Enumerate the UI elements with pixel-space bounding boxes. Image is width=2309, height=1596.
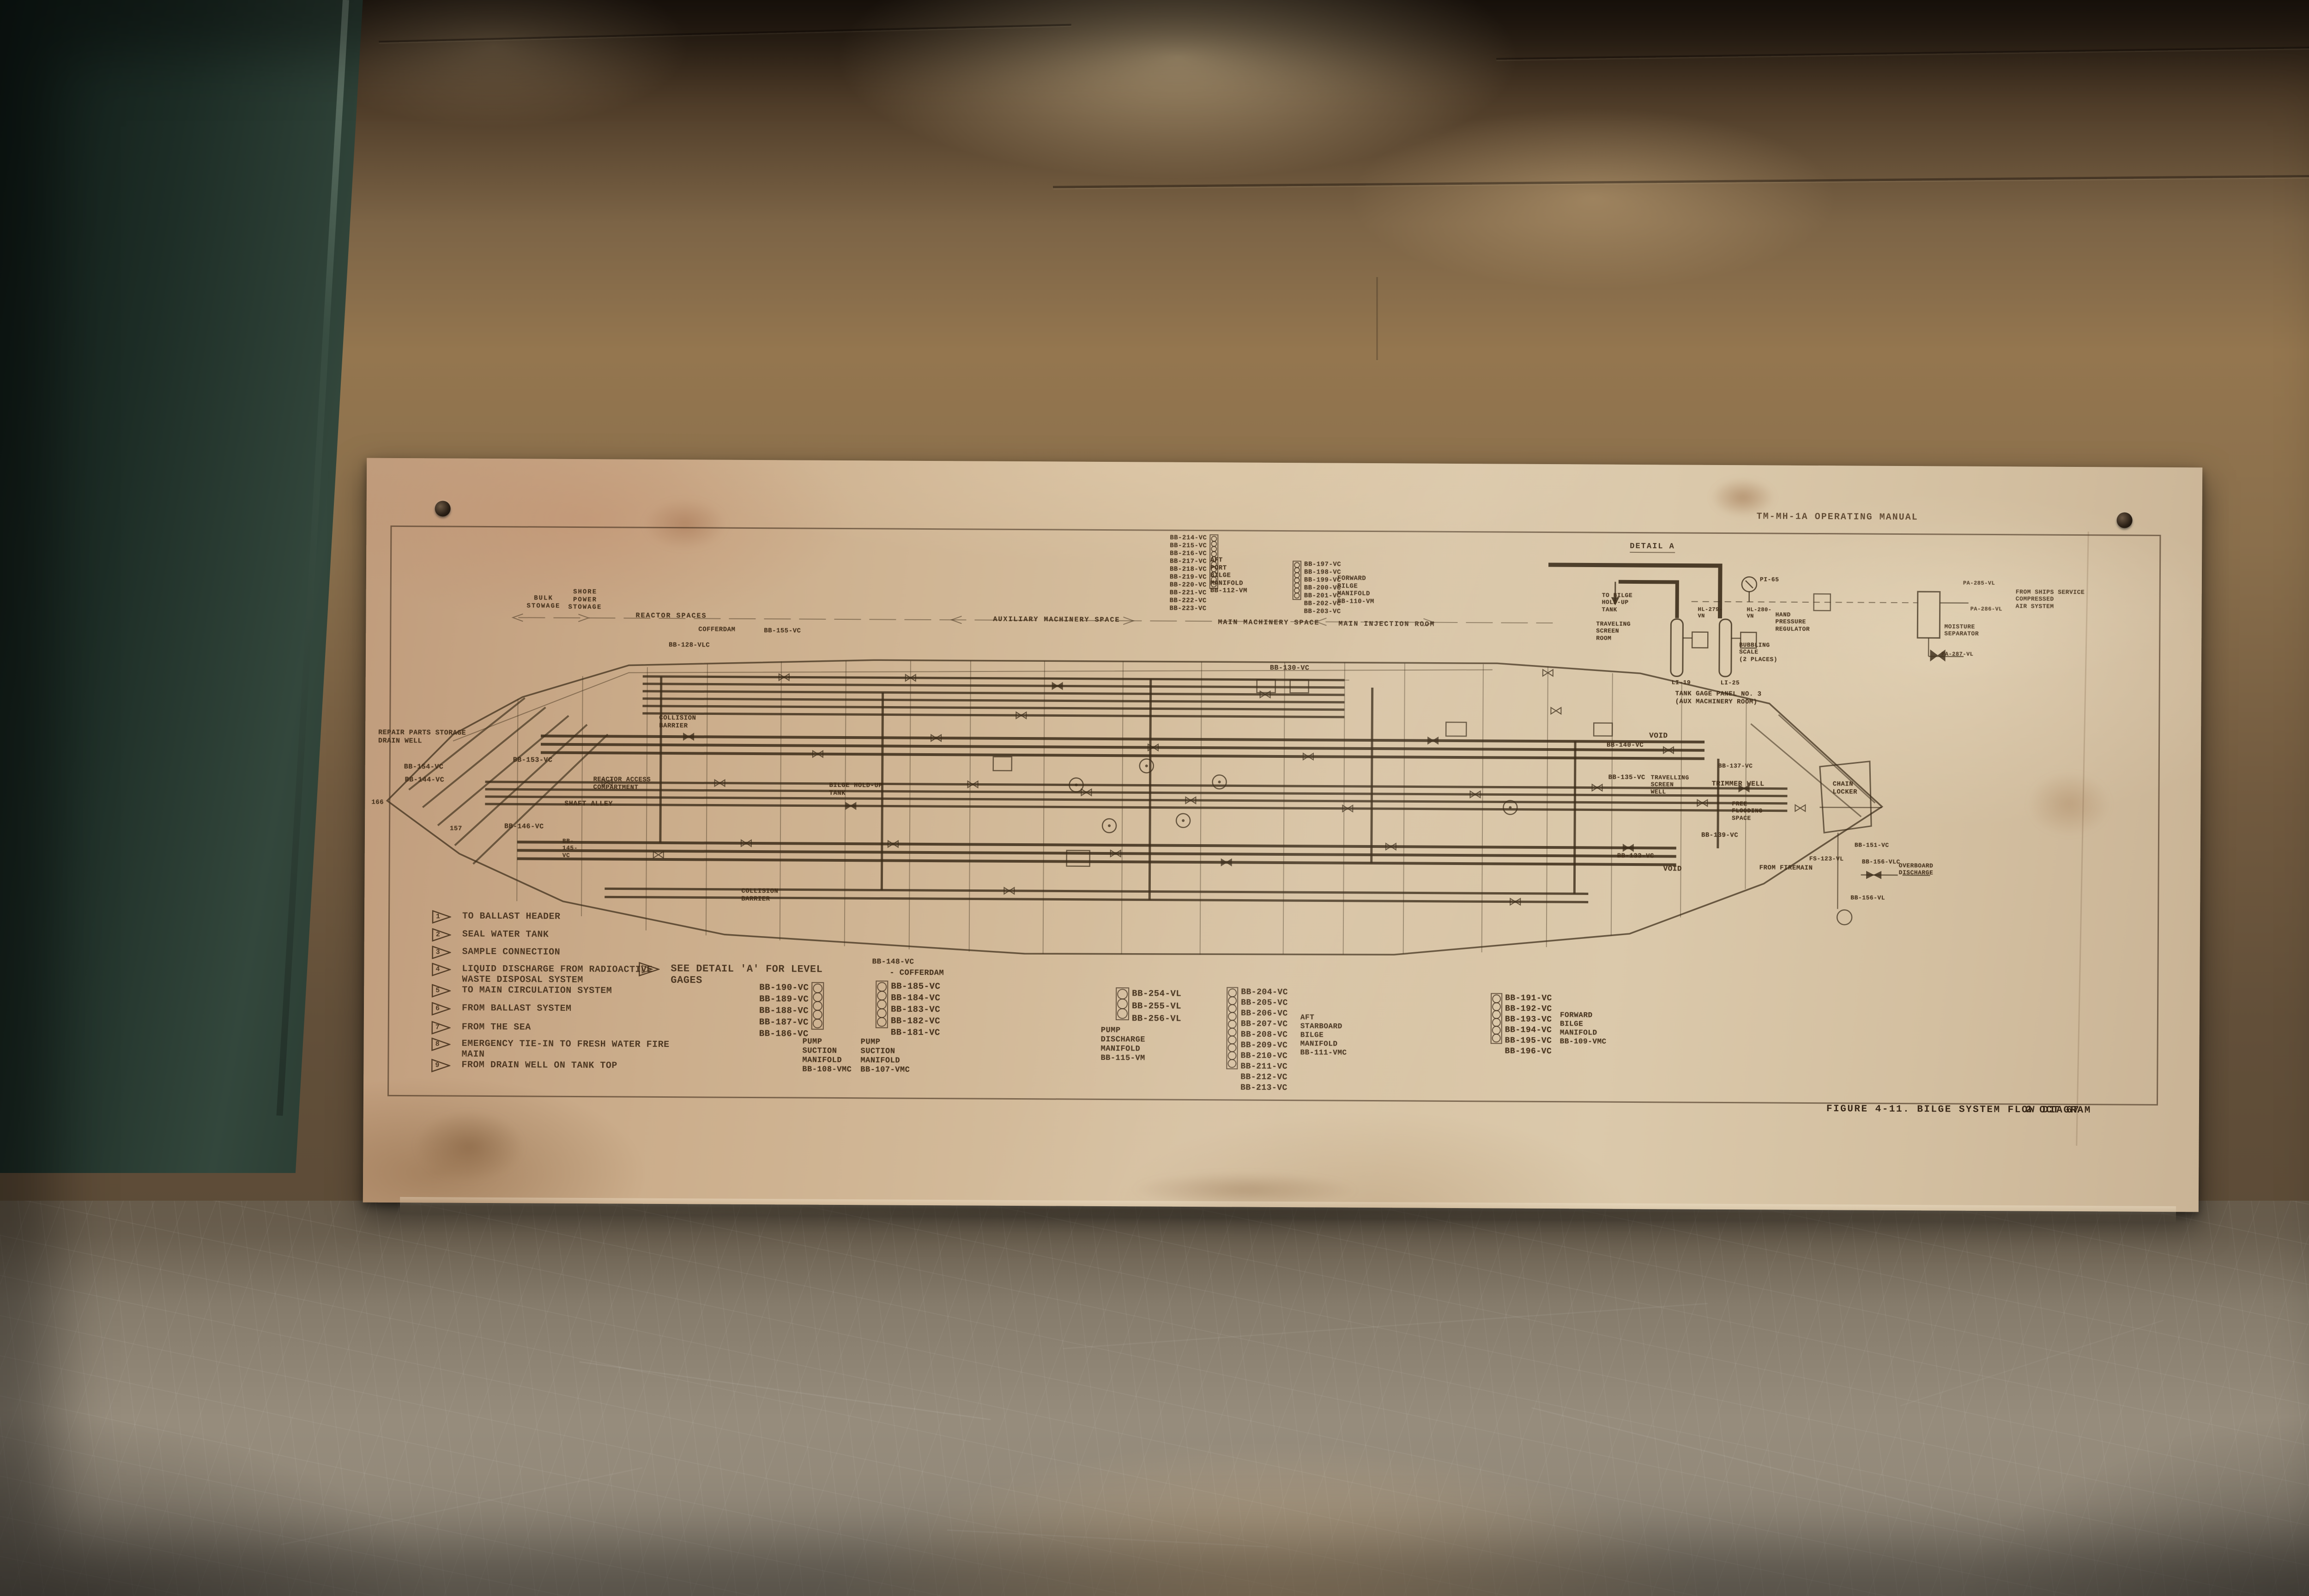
screw-icon bbox=[435, 501, 451, 516]
detail-a-label: TRAVELING SCREEN ROOM bbox=[1596, 621, 1631, 642]
steel-floor bbox=[0, 1201, 2309, 1596]
detail-a-label: PA-287-VL bbox=[1941, 651, 1973, 658]
screw-icon bbox=[2117, 512, 2133, 528]
wall-seam bbox=[1053, 174, 2309, 188]
detail-a-label: FROM SHIPS SERVICE COMPRESSED AIR SYSTEM bbox=[2016, 588, 2085, 610]
wall-light-glow bbox=[693, 0, 1662, 231]
wall-seam bbox=[379, 24, 1071, 43]
detail-a-label: LI-25 bbox=[1721, 679, 1740, 687]
wall-seam bbox=[1496, 45, 2309, 60]
detail-a-label: TO BILGE HOLD-UP TANK bbox=[1602, 592, 1633, 613]
detail-a-labels: TO BILGE HOLD-UP TANKTRAVELING SCREEN RO… bbox=[363, 458, 2202, 1212]
detail-a-label: LI-19 bbox=[1672, 679, 1691, 686]
detail-a-label: HL-279- VN bbox=[1698, 606, 1723, 620]
detail-a-label: PI-65 bbox=[1760, 576, 1779, 583]
wall-light-glow bbox=[1247, 69, 1940, 328]
wall-seam bbox=[1376, 277, 1378, 360]
detail-a-label: MOISTURE SEPARATOR bbox=[1944, 623, 1979, 637]
detail-a-label: HL-280- VN bbox=[1747, 606, 1771, 620]
detail-a-label: BUBBLING SCALE (2 PLACES) bbox=[1739, 641, 1777, 663]
bilge-diagram-plaque: TM-MH-1A OPERATING MANUAL FIGURE 4-11. B… bbox=[363, 458, 2202, 1212]
photo-scene: TM-MH-1A OPERATING MANUAL FIGURE 4-11. B… bbox=[0, 0, 2309, 1596]
cabinet-panel bbox=[0, 0, 374, 1173]
detail-a-label: PA-285-VL bbox=[1963, 580, 1995, 587]
detail-a-label: PA-286-VL bbox=[1971, 606, 2002, 613]
detail-a-label: HAND PRESSURE REGULATOR bbox=[1775, 611, 1810, 633]
detail-a-label: TANK GAGE PANEL NO. 3 (AUX MACHINERY ROO… bbox=[1675, 690, 1761, 706]
